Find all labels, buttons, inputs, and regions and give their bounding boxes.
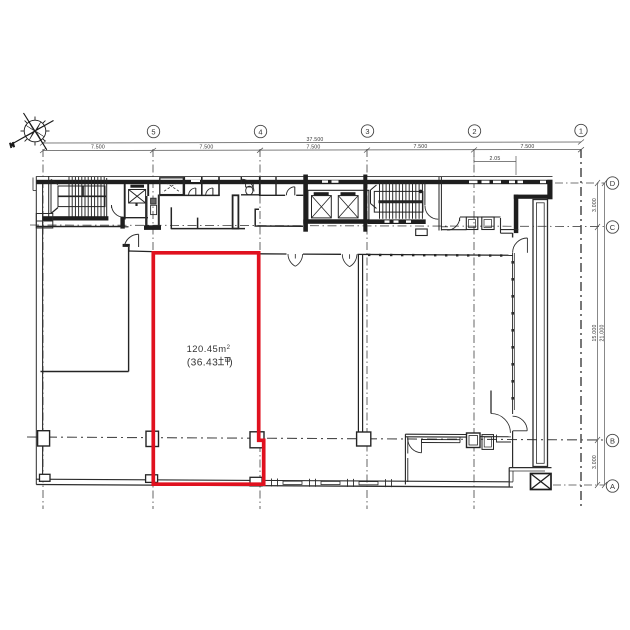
svg-text:120.45m2: 120.45m2: [187, 343, 231, 354]
svg-text:C: C: [610, 223, 616, 232]
svg-text:21.000: 21.000: [600, 324, 606, 341]
svg-text:7.500: 7.500: [91, 145, 105, 151]
svg-text:2: 2: [472, 127, 476, 136]
svg-text:3.000: 3.000: [592, 455, 598, 469]
svg-text:7.500: 7.500: [521, 144, 535, 150]
svg-text:7.500: 7.500: [414, 144, 428, 150]
svg-text:3.000: 3.000: [592, 198, 598, 212]
svg-text:5: 5: [151, 127, 155, 136]
svg-text:1: 1: [579, 126, 583, 135]
svg-text:(36.43: (36.43: [187, 358, 218, 369]
svg-text:2.05: 2.05: [490, 156, 501, 162]
svg-text:A: A: [610, 482, 615, 491]
svg-text:7.500: 7.500: [307, 144, 321, 150]
svg-text:): ): [229, 358, 232, 369]
svg-text:15.000: 15.000: [592, 324, 598, 341]
svg-text:37.500: 37.500: [306, 137, 323, 143]
svg-text:D: D: [610, 179, 616, 188]
svg-text:B: B: [610, 436, 615, 445]
svg-text:4: 4: [258, 127, 262, 136]
svg-text:3: 3: [365, 127, 369, 136]
svg-text:7.500: 7.500: [200, 145, 214, 151]
